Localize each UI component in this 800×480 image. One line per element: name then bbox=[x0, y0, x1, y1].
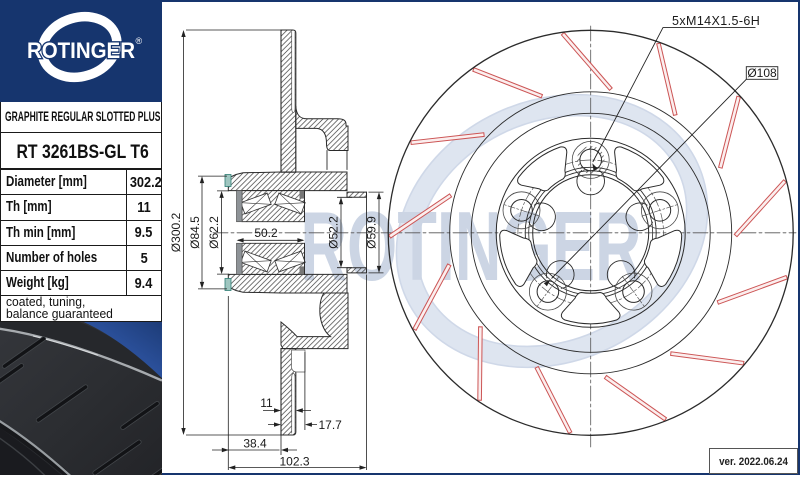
svg-text:Ø108: Ø108 bbox=[747, 66, 777, 80]
svg-text:®: ® bbox=[136, 36, 143, 46]
svg-text:Ø300.2: Ø300.2 bbox=[169, 212, 183, 252]
svg-text:Ø52.2: Ø52.2 bbox=[327, 216, 341, 249]
svg-text:Ø84.5: Ø84.5 bbox=[188, 216, 202, 249]
svg-text:17.7: 17.7 bbox=[319, 418, 343, 432]
svg-text:102.3: 102.3 bbox=[279, 454, 309, 468]
svg-text:Ø62.2: Ø62.2 bbox=[207, 216, 221, 249]
svg-text:38.4: 38.4 bbox=[243, 436, 267, 450]
svg-text:Ø59.9: Ø59.9 bbox=[365, 216, 379, 249]
svg-text:ROTINGER: ROTINGER bbox=[27, 38, 135, 63]
svg-text:11: 11 bbox=[260, 396, 273, 410]
svg-text:5xM14X1.5-6H: 5xM14X1.5-6H bbox=[672, 14, 760, 28]
svg-text:50.2: 50.2 bbox=[254, 226, 278, 240]
